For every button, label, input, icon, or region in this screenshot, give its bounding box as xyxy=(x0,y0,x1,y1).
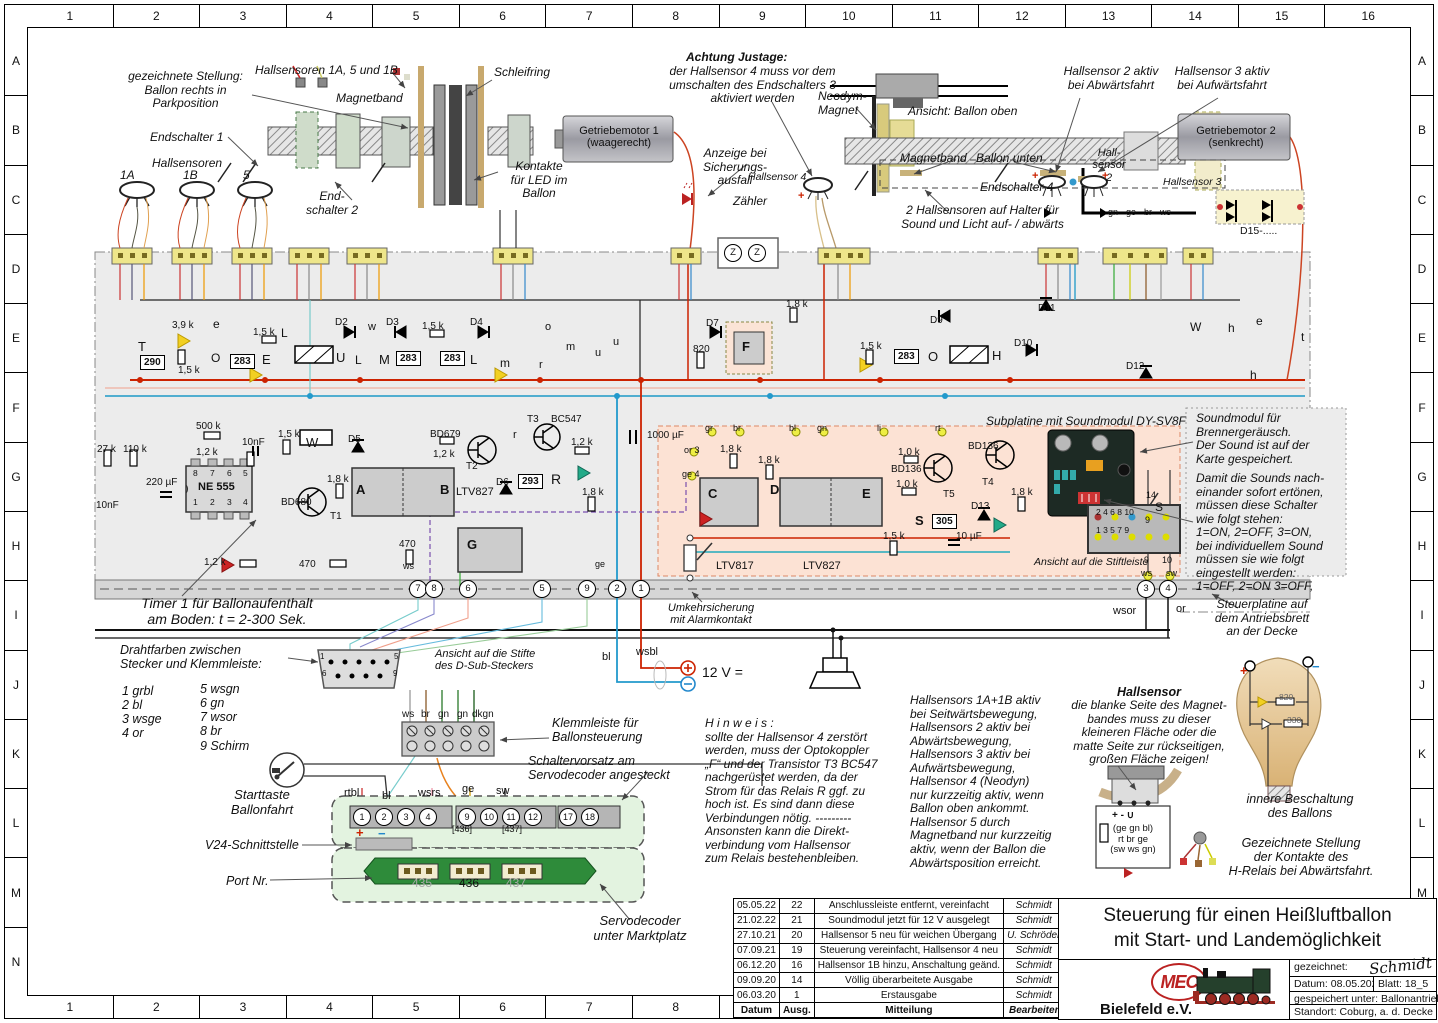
hall-sensors-1a-1b-5 xyxy=(118,182,272,248)
locomotive-image xyxy=(1189,961,1289,1011)
grid-coordinate: 16 xyxy=(1325,5,1411,27)
grid-coordinate: 10 xyxy=(806,5,893,27)
grid-coordinate: 12 xyxy=(979,5,1066,27)
grid-coordinate: 4 xyxy=(287,5,374,27)
revision-row: 06.12.2016Hallsensor 1B hinzu, Anschaltu… xyxy=(734,958,1064,973)
schematic-drawing xyxy=(0,0,1438,1023)
grid-coordinate: D xyxy=(5,235,27,304)
start-button xyxy=(270,753,304,787)
grid-coordinate: 9 xyxy=(720,5,807,27)
revision-table: 05.05.2222Anschlussleiste entfernt, vere… xyxy=(733,898,1064,1018)
grid-coordinate: 3 xyxy=(200,996,287,1018)
grid-coordinate: C xyxy=(1411,166,1433,235)
grid-coordinate: K xyxy=(5,720,27,789)
grid-coordinate: N xyxy=(5,928,27,996)
grid-coordinate: G xyxy=(1411,443,1433,512)
speaker xyxy=(810,658,860,688)
grid-coordinate: 1 xyxy=(27,996,114,1018)
grid-coordinate: J xyxy=(5,651,27,720)
revision-row: 27.10.2120Hallsensor 5 neu für weichen Ü… xyxy=(734,928,1064,943)
grid-coordinate: M xyxy=(5,858,27,927)
grid-coordinate: H xyxy=(1411,512,1433,581)
revision-table-header: DatumAusg.MitteilungBearbeiter xyxy=(734,1003,1064,1018)
grid-coordinate: 7 xyxy=(546,996,633,1018)
grid-coordinate: L xyxy=(5,789,27,858)
grid-coordinate: 5 xyxy=(373,996,460,1018)
grid-coordinate: L xyxy=(1411,789,1433,858)
revision-row: 09.09.2014Völlig überarbeitete AusgabeSc… xyxy=(734,973,1064,988)
location-field: Standort: Coburg, a. d. Decke xyxy=(1289,1004,1436,1019)
grid-coordinate: 7 xyxy=(546,5,633,27)
revision-row: 21.02.2221Soundmodul jetzt für 12 V ausg… xyxy=(734,913,1064,928)
grid-coordinate: 15 xyxy=(1239,5,1326,27)
grid-coordinate: 13 xyxy=(1066,5,1153,27)
grid-coordinate: 5 xyxy=(373,5,460,27)
grid-coordinate: 3 xyxy=(200,5,287,27)
grid-coordinate: 1 xyxy=(27,5,114,27)
grid-coordinate: I xyxy=(1411,581,1433,650)
grid-coordinate: A xyxy=(1411,27,1433,96)
supply-terminals xyxy=(654,661,695,691)
grid-coordinate: K xyxy=(1411,720,1433,789)
grid-coordinate: 6 xyxy=(460,996,547,1018)
balloon xyxy=(1237,657,1321,801)
grid-coordinate: 6 xyxy=(460,5,547,27)
saved-field: gespeichert unter: Ballonantrieb xyxy=(1289,991,1436,1004)
grid-coordinate: 11 xyxy=(893,5,980,27)
grid-coordinate: A xyxy=(5,27,27,96)
klemmleiste xyxy=(402,722,494,756)
grid-coordinate: B xyxy=(5,96,27,165)
grid-coordinate: F xyxy=(1411,373,1433,442)
grid-coordinate: C xyxy=(5,166,27,235)
title-block: Steuerung für einen Heißluftballon mit S… xyxy=(1058,898,1437,1020)
grid-coordinate: 8 xyxy=(633,5,720,27)
grid-coordinate: 2 xyxy=(114,5,201,27)
grid-coordinate: J xyxy=(1411,651,1433,720)
grid-coordinate: I xyxy=(5,581,27,650)
grid-coordinate: D xyxy=(1411,235,1433,304)
grid-columns-top: 12345678910111213141516 xyxy=(27,5,1411,27)
bridge-rectifier-d15 xyxy=(1216,190,1304,224)
grid-coordinate: 2 xyxy=(114,996,201,1018)
sheet-title: Steuerung für einen Heißluftballon mit S… xyxy=(1059,899,1436,960)
grid-rows-right: ABCDEFGHIJKLMN xyxy=(1411,27,1433,996)
revision-row: 07.09.2119Steuerung vereinfacht, Hallsen… xyxy=(734,943,1064,958)
grid-rows-left: ABCDEFGHIJKLMN xyxy=(5,27,27,996)
grid-coordinate: F xyxy=(5,373,27,442)
grid-coordinate: 4 xyxy=(287,996,374,1018)
revision-row: 05.05.2222Anschlussleiste entfernt, vere… xyxy=(734,899,1064,914)
servodecoder-areas xyxy=(332,796,644,902)
grid-coordinate: E xyxy=(1411,304,1433,373)
spindle-assembly-horizontal xyxy=(218,66,673,248)
grid-coordinate: B xyxy=(1411,96,1433,165)
sheet-field: Blatt: 18_5 xyxy=(1373,976,1436,991)
soundmodul-subboard-region xyxy=(658,408,1346,576)
revision-row: 06.03.201ErstausgabeSchmidt xyxy=(734,988,1064,1003)
grid-coordinate: H xyxy=(5,512,27,581)
hall-sensor-holder xyxy=(1096,766,1216,878)
grid-coordinate: 14 xyxy=(1152,5,1239,27)
grid-coordinate: G xyxy=(5,443,27,512)
date-field: Datum: 08.05.2022 xyxy=(1289,976,1373,991)
grid-coordinate: 8 xyxy=(633,996,720,1018)
dsub-connector xyxy=(318,650,400,688)
grid-coordinate: E xyxy=(5,304,27,373)
schematic-sheet: 12345678910111213141516 1234567891011121… xyxy=(0,0,1438,1023)
